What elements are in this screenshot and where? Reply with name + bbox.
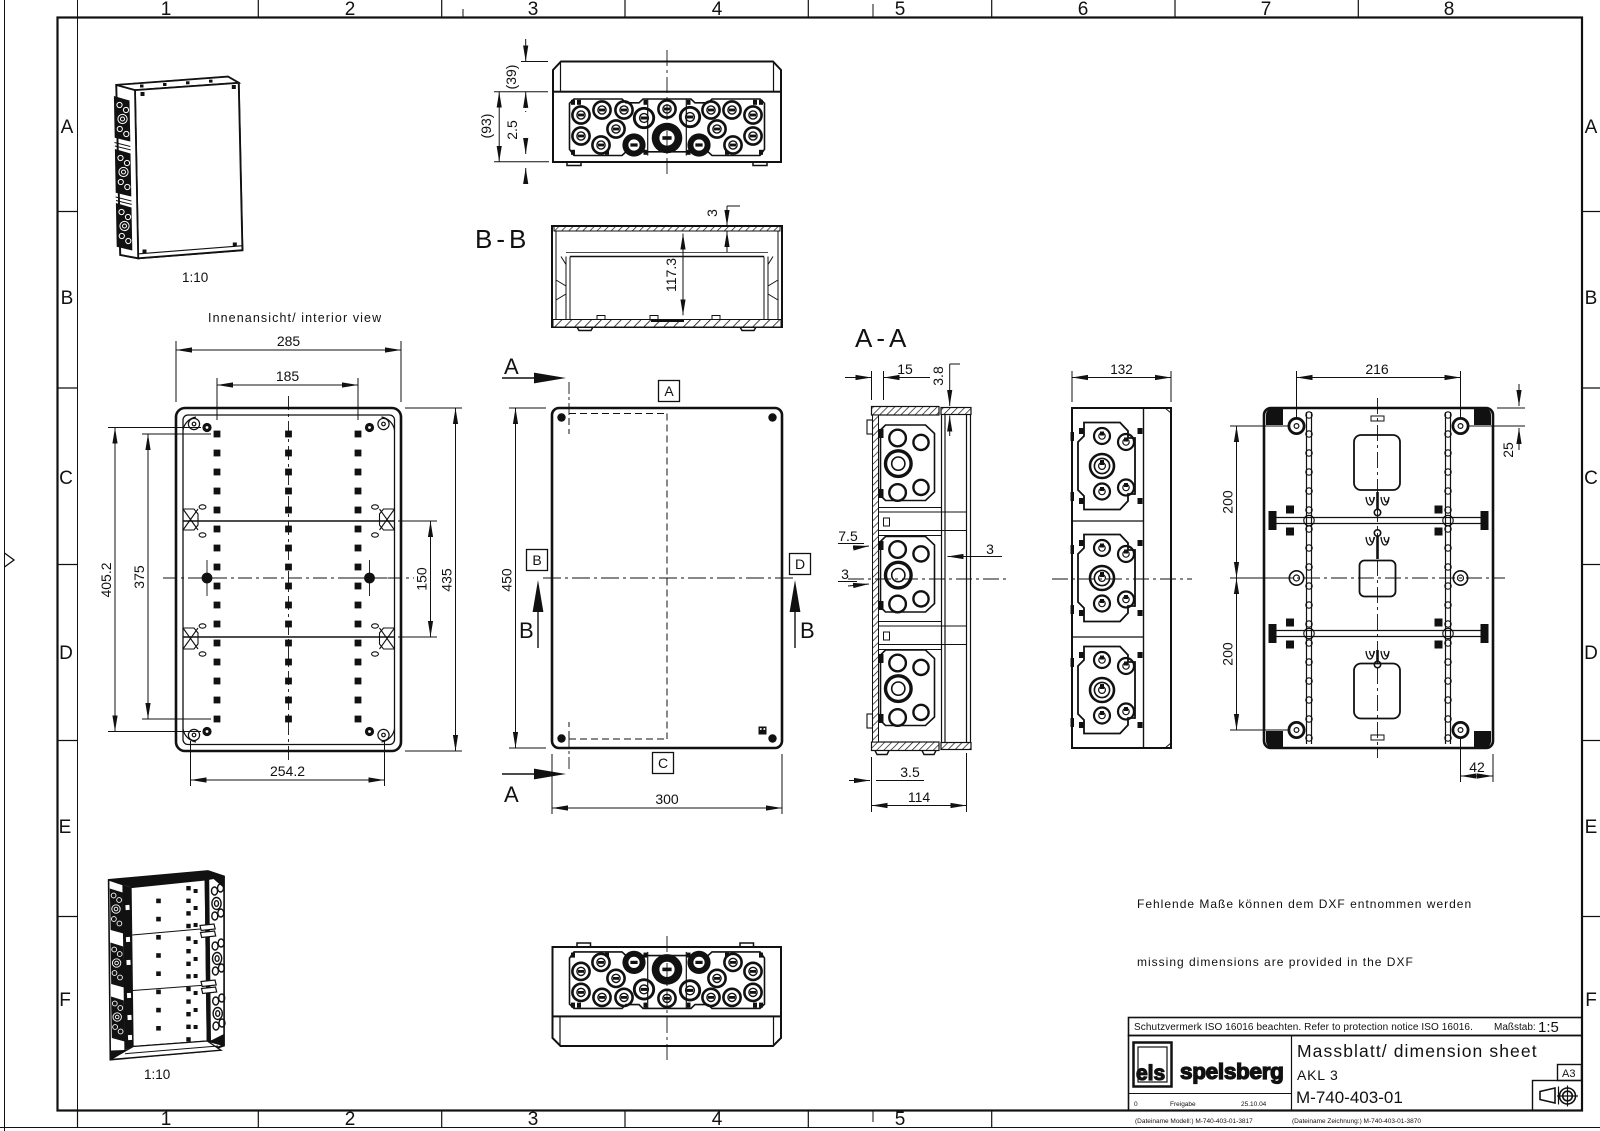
svg-text:3.5: 3.5 xyxy=(900,764,920,780)
svg-text:117.3: 117.3 xyxy=(663,258,679,292)
svg-text:Maßstab:: Maßstab: xyxy=(1494,1022,1536,1033)
svg-text:7.5: 7.5 xyxy=(838,528,858,544)
svg-text:3: 3 xyxy=(528,1109,539,1130)
svg-text:15: 15 xyxy=(897,361,913,377)
svg-text:E: E xyxy=(59,817,72,838)
svg-text:200: 200 xyxy=(1220,490,1236,514)
svg-text:(Dateiname Zeichnung:) M-740-: (Dateiname Zeichnung:) M-740-403-01-3870 xyxy=(1292,1118,1421,1125)
svg-text:1:10: 1:10 xyxy=(144,1067,170,1082)
svg-text:A: A xyxy=(504,354,519,379)
svg-text:185: 185 xyxy=(276,368,300,384)
svg-text:5: 5 xyxy=(895,1109,906,1130)
svg-text:C: C xyxy=(59,468,73,489)
svg-text:B: B xyxy=(519,618,534,643)
svg-text:A: A xyxy=(61,117,74,138)
svg-text:C: C xyxy=(1584,468,1598,489)
svg-text:216: 216 xyxy=(1365,361,1389,377)
svg-text:B-B: B-B xyxy=(475,224,530,254)
svg-text:4: 4 xyxy=(712,1109,723,1130)
svg-text:5: 5 xyxy=(895,0,906,20)
svg-text:D: D xyxy=(795,556,805,572)
svg-text:8: 8 xyxy=(1444,0,1455,20)
svg-text:254.2: 254.2 xyxy=(270,763,305,779)
svg-text:150: 150 xyxy=(414,567,430,591)
svg-text:405.2: 405.2 xyxy=(98,562,114,597)
svg-text:A: A xyxy=(504,782,519,807)
svg-text:F: F xyxy=(59,990,71,1011)
svg-text:AKL 3: AKL 3 xyxy=(1297,1067,1339,1083)
svg-text:25: 25 xyxy=(1500,442,1516,458)
svg-text:25.10.04: 25.10.04 xyxy=(1241,1101,1267,1108)
svg-text:Innenansicht/ interior view: Innenansicht/ interior view xyxy=(208,311,382,325)
svg-text:3: 3 xyxy=(528,0,539,20)
svg-text:A: A xyxy=(664,383,674,399)
svg-text:(93): (93) xyxy=(478,114,494,139)
svg-text:300: 300 xyxy=(655,791,679,807)
svg-text:285: 285 xyxy=(277,333,301,349)
svg-text:435: 435 xyxy=(439,568,455,592)
svg-text:F: F xyxy=(1585,990,1597,1011)
svg-text:450: 450 xyxy=(499,568,515,592)
svg-text:D: D xyxy=(1584,643,1598,664)
svg-text:B: B xyxy=(61,288,74,309)
svg-text:1: 1 xyxy=(161,0,172,20)
svg-text:2.5: 2.5 xyxy=(504,120,520,140)
svg-text:(Dateiname Modell:) M-740-403-: (Dateiname Modell:) M-740-403-01-3817 xyxy=(1135,1118,1253,1125)
svg-text:A3: A3 xyxy=(1562,1068,1575,1080)
svg-text:A-A: A-A xyxy=(855,323,910,353)
svg-text:42: 42 xyxy=(1469,759,1485,775)
svg-text:Massblatt/ dimension sheet: Massblatt/ dimension sheet xyxy=(1297,1041,1538,1061)
svg-text:E: E xyxy=(1585,817,1598,838)
svg-text:missing dimensions are provide: missing dimensions are provided in the D… xyxy=(1137,955,1414,969)
svg-text:375: 375 xyxy=(131,565,147,589)
svg-text:2: 2 xyxy=(345,1109,356,1130)
svg-text:Freigabe: Freigabe xyxy=(1170,1101,1196,1108)
svg-text:B: B xyxy=(532,552,541,568)
svg-text:4: 4 xyxy=(712,0,723,20)
svg-text:(39): (39) xyxy=(503,65,519,90)
svg-text:3.8: 3.8 xyxy=(930,366,946,386)
svg-text:B: B xyxy=(800,618,815,643)
svg-text:C: C xyxy=(658,755,668,771)
svg-text:3: 3 xyxy=(704,209,720,217)
svg-text:3: 3 xyxy=(841,566,849,582)
svg-text:1: 1 xyxy=(161,1109,172,1130)
svg-text:3: 3 xyxy=(986,541,994,557)
svg-text:200: 200 xyxy=(1220,642,1236,666)
svg-text:B: B xyxy=(1585,288,1598,309)
svg-text:A: A xyxy=(1585,117,1598,138)
svg-text:6: 6 xyxy=(1078,0,1089,20)
svg-text:132: 132 xyxy=(1110,362,1133,377)
svg-text:0: 0 xyxy=(1134,1101,1138,1108)
svg-text:7: 7 xyxy=(1261,0,1272,20)
svg-text:els: els xyxy=(1136,1062,1165,1085)
svg-text:D: D xyxy=(59,643,73,664)
svg-text:Schutzvermerk ISO 16016 beacht: Schutzvermerk ISO 16016 beachten. Refer … xyxy=(1134,1022,1473,1033)
svg-text:114: 114 xyxy=(908,789,931,805)
svg-text:2: 2 xyxy=(345,0,356,20)
svg-text:1:10: 1:10 xyxy=(182,270,208,285)
svg-text:spelsberg: spelsberg xyxy=(1180,1059,1284,1084)
svg-text:M-740-403-01: M-740-403-01 xyxy=(1296,1088,1403,1107)
svg-text:1:5: 1:5 xyxy=(1538,1019,1559,1036)
svg-text:Fehlende Maße können dem DXF e: Fehlende Maße können dem DXF entnommen w… xyxy=(1137,897,1472,911)
